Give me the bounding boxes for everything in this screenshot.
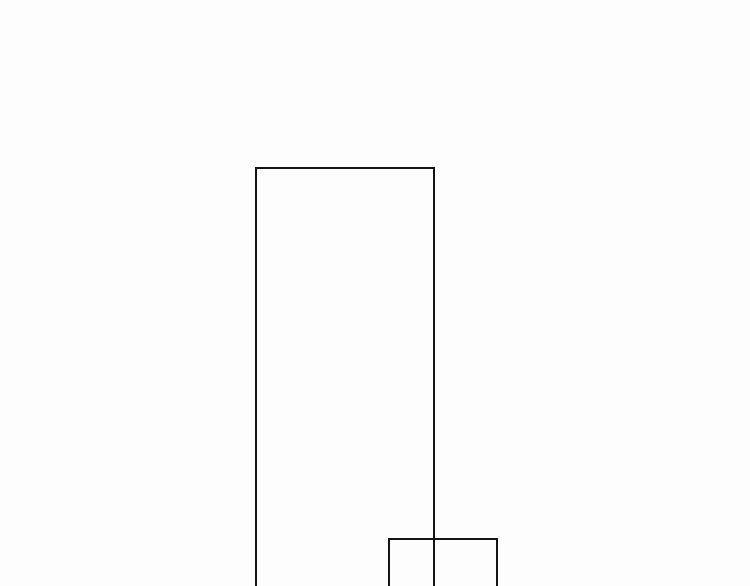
small-panel-rectangle bbox=[388, 538, 498, 586]
large-panel-rectangle bbox=[255, 167, 435, 586]
drawing-canvas bbox=[0, 0, 750, 586]
